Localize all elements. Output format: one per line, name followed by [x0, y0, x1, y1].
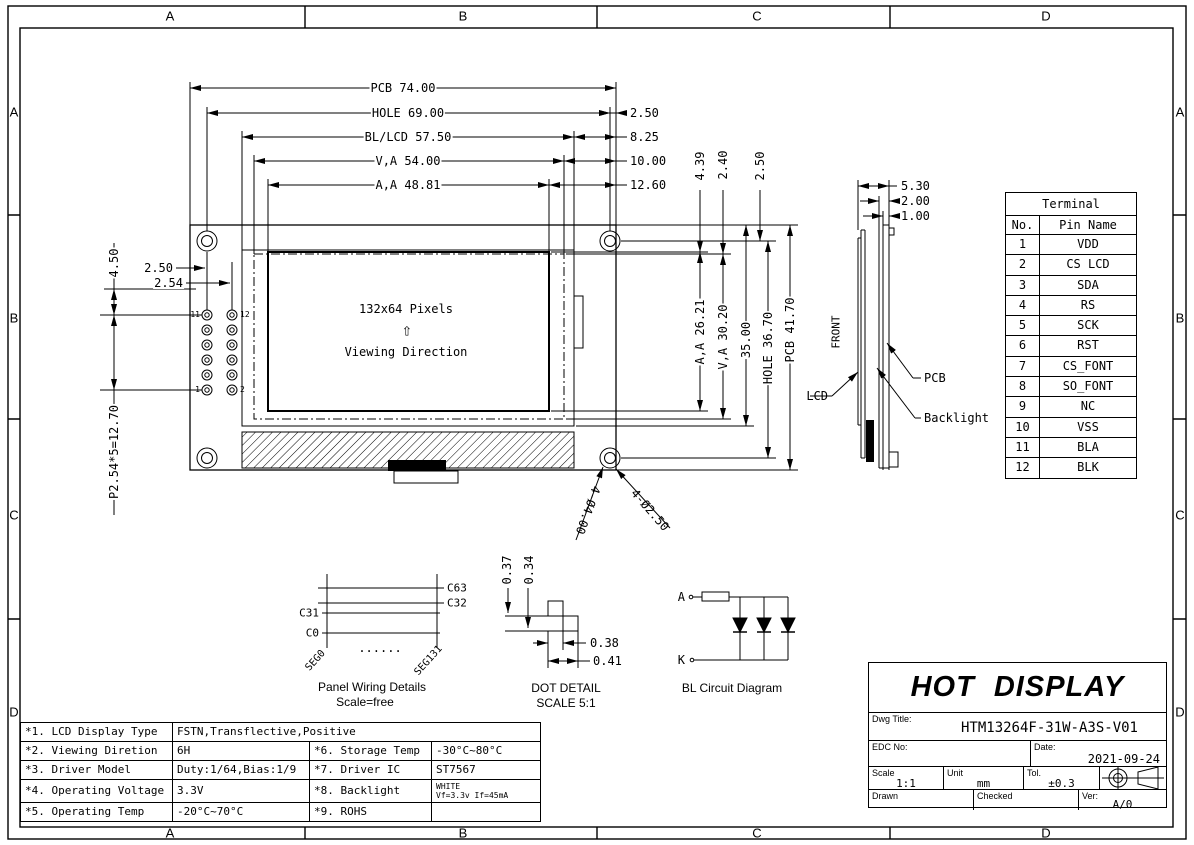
dim-pcb-width: PCB 74.00 — [369, 82, 436, 94]
spec-row: *1. LCD Display Type FSTN,Transflective,… — [21, 723, 540, 741]
terminal-row: 3SDA — [1006, 275, 1136, 295]
terminal-row: 12BLK — [1006, 457, 1136, 477]
spec-row: *5. Operating Temp -20°C~70°C *9. ROHS — [21, 802, 540, 821]
drawing-sheet: A B C D A B C D A B C D A B C D PCB 74.0… — [0, 0, 1194, 845]
pin-no: 9 — [1006, 397, 1040, 416]
spec-row: *3. Driver Model Duty:1/64,Bias:1/9 *7. … — [21, 760, 540, 779]
spec-value: 6H — [172, 742, 309, 760]
bl-circuit-diagram — [689, 592, 795, 662]
dim-pin-row-pitch: P2.54*5=12.70 — [108, 404, 120, 500]
third-angle-projection-icon — [1102, 767, 1164, 789]
spec-value: ST7567 — [431, 761, 540, 779]
terminal-row: 4RS — [1006, 295, 1136, 315]
pin-name: RST — [1040, 336, 1136, 355]
wiring-label-c32: C32 — [446, 598, 468, 609]
spec-value: FSTN,Transflective,Positive — [172, 723, 540, 741]
dim-pin-offset-250: 2.50 — [143, 262, 174, 274]
terminal-row: 7CS_FONT — [1006, 356, 1136, 376]
drawn-cell: Drawn — [869, 790, 973, 810]
wiring-label-c31: C31 — [298, 608, 320, 619]
edc-no-cell: EDC No: — [869, 741, 1030, 766]
spec-table: *1. LCD Display Type FSTN,Transflective,… — [20, 722, 541, 822]
zone-letter-right-b: B — [1176, 312, 1185, 325]
pin-label-11: 11 — [190, 311, 200, 319]
zone-letter-top-a: A — [166, 10, 175, 23]
side-tab — [889, 452, 898, 467]
spec-label: *7. Driver IC — [309, 761, 431, 779]
date-value: 2021-09-24 — [1031, 752, 1166, 766]
spec-label: *8. Backlight — [309, 780, 431, 802]
pin-no: 3 — [1006, 276, 1040, 295]
dim-hole-width: HOLE 69.00 — [371, 107, 445, 119]
tolerance-value: ±0.3 — [1024, 777, 1099, 790]
tolerance-label: Tol. — [1027, 768, 1041, 778]
pin-label-1: 1 — [195, 386, 200, 394]
side-connector — [866, 420, 874, 462]
bl-anode-label: A — [677, 591, 686, 603]
spec-label: *3. Driver Model — [21, 761, 172, 779]
zone-letter-top-b: B — [459, 10, 468, 23]
spec-label: *2. Viewing Diretion — [21, 742, 172, 760]
dot-dim-037: 0.37 — [501, 555, 513, 586]
pin-name: VSS — [1040, 418, 1136, 437]
terminal-row: 9NC — [1006, 396, 1136, 416]
pin-no: 7 — [1006, 357, 1040, 376]
dim-va-height: V,A 30.20 — [717, 303, 729, 370]
zone-letter-left-d: D — [9, 706, 18, 719]
zone-letter-left-b: B — [10, 312, 19, 325]
pin-name: SDA — [1040, 276, 1136, 295]
viewing-direction-arrow-icon: ⇧ — [402, 323, 412, 340]
dim-250-v: 2.50 — [754, 151, 766, 182]
unit-label: Unit — [947, 768, 963, 778]
backlight-layer-label: Backlight — [923, 412, 990, 424]
version-label: Ver: — [1082, 791, 1098, 801]
checked-cell: Checked — [973, 790, 1078, 810]
dim-bllcd-width: BL/LCD 57.50 — [364, 131, 453, 143]
dim-450-vertical: 4.50 — [108, 248, 120, 279]
dim-pin-pitch-254: 2.54 — [153, 277, 184, 289]
pin-name: CS LCD — [1040, 255, 1136, 274]
dot-dim-038: 0.38 — [589, 637, 620, 649]
viewing-direction-label: Viewing Direction — [344, 346, 469, 358]
zone-letter-right-a: A — [1176, 106, 1185, 119]
dim-offset-825: 8.25 — [629, 131, 660, 143]
checked-label: Checked — [977, 791, 1013, 801]
bl-circuit-caption: BL Circuit Diagram — [682, 682, 782, 694]
terminal-row: 8SO_FONT — [1006, 376, 1136, 396]
terminal-row: 6RST — [1006, 335, 1136, 355]
spec-value: WHITE Vf=3.3v If=45mA — [431, 780, 540, 802]
spec-row: *4. Operating Voltage 3.3V *8. Backlight… — [21, 779, 540, 802]
dim-pcb-height: PCB 41.70 — [784, 296, 796, 363]
zone-letter-left-c: C — [9, 509, 18, 522]
spec-label: *5. Operating Temp — [21, 803, 172, 821]
dim-aa-height: A,A 26.21 — [694, 298, 706, 365]
display-resolution-label: 132x64 Pixels — [358, 303, 454, 315]
zone-letter-left-a: A — [10, 106, 19, 119]
terminal-col-no: No. — [1006, 216, 1040, 234]
date-cell: Date: 2021-09-24 — [1030, 741, 1166, 766]
dot-detail-caption: DOT DETAIL — [531, 682, 601, 694]
unit-value: mm — [944, 777, 1023, 790]
lcd-side-tab — [574, 296, 583, 348]
pin-no: 2 — [1006, 255, 1040, 274]
spec-label: *9. ROHS — [309, 803, 431, 821]
side-view — [810, 180, 921, 470]
title-block: HOT DISPLAY Dwg Title: HTM13264F-31W-A3S… — [868, 662, 1167, 808]
spec-label: *4. Operating Voltage — [21, 780, 172, 802]
dwg-title-label: Dwg Title: — [872, 714, 912, 724]
lcd-layer-label: LCD — [805, 390, 829, 402]
pin-no: 4 — [1006, 296, 1040, 315]
unit-cell: Unit mm — [943, 767, 1023, 789]
panel-wiring-diagram — [318, 574, 444, 648]
dwg-title-label-cell: Dwg Title: — [869, 713, 933, 740]
edc-no-label: EDC No: — [872, 742, 908, 752]
dim-hole-height: HOLE 36.70 — [762, 311, 774, 385]
panel-wiring-caption: Panel Wiring Details — [318, 681, 426, 693]
backlight-color: WHITE — [436, 782, 540, 791]
dim-439: 4.39 — [694, 151, 706, 182]
spec-value: -20°C~70°C — [172, 803, 309, 821]
resistor — [702, 592, 729, 601]
dwg-title-value: HTM13264F-31W-A3S-V01 — [933, 713, 1166, 740]
pin-name: CS_FONT — [1040, 357, 1136, 376]
zone-letter-top-c: C — [752, 10, 761, 23]
wiring-ellipsis: ...... — [357, 642, 402, 654]
backlight-connector — [388, 460, 446, 471]
pin-label-12: 12 — [240, 311, 250, 319]
terminal-row: 5SCK — [1006, 315, 1136, 335]
spec-value: 3.3V — [172, 780, 309, 802]
dim-offset-250: 2.50 — [629, 107, 660, 119]
panel-wiring-scale-note: Scale=free — [336, 696, 394, 708]
date-label: Date: — [1034, 742, 1056, 752]
dim-3500: 35.00 — [740, 321, 752, 359]
zone-letter-bottom-c: C — [752, 827, 761, 840]
pin-no: 10 — [1006, 418, 1040, 437]
scale-cell: Scale 1:1 — [869, 767, 943, 789]
pin-no: 5 — [1006, 316, 1040, 335]
zone-letter-bottom-a: A — [166, 827, 175, 840]
drawn-label: Drawn — [872, 791, 898, 801]
spec-value — [431, 803, 540, 821]
front-orientation-label: FRONT — [831, 314, 842, 349]
spec-row: *2. Viewing Diretion 6H *6. Storage Temp… — [21, 741, 540, 760]
spec-value: -30°C~80°C — [431, 742, 540, 760]
terminal-table-header: No. Pin Name — [1006, 215, 1136, 234]
pin-no: 1 — [1006, 235, 1040, 254]
terminal-table: Terminal No. Pin Name 1VDD 2CS LCD 3SDA … — [1005, 192, 1137, 479]
pin-name: NC — [1040, 397, 1136, 416]
company-logo: HOT DISPLAY — [869, 663, 1166, 713]
pin-name: SCK — [1040, 316, 1136, 335]
dim-240: 2.40 — [717, 150, 729, 181]
tolerance-cell: Tol. ±0.3 — [1023, 767, 1099, 789]
pin-name: VDD — [1040, 235, 1136, 254]
wiring-label-c63: C63 — [446, 583, 468, 594]
pin-header — [202, 310, 237, 395]
dot-detail-scale-note: SCALE 5:1 — [536, 697, 595, 709]
pin-name: SO_FONT — [1040, 377, 1136, 396]
scale-value: 1:1 — [869, 777, 943, 790]
zone-letter-bottom-b: B — [459, 827, 468, 840]
connector-tab — [394, 471, 458, 483]
dim-side-200: 2.00 — [900, 195, 931, 207]
zone-letter-right-c: C — [1175, 509, 1184, 522]
pin-label-2: 2 — [240, 386, 245, 394]
terminal-row: 2CS LCD — [1006, 254, 1136, 274]
pin-name: RS — [1040, 296, 1136, 315]
led-symbols — [733, 618, 795, 632]
bl-cathode-label: K — [677, 654, 686, 666]
terminal-row: 1VDD — [1006, 234, 1136, 254]
backlight-rating: Vf=3.3v If=45mA — [436, 791, 540, 800]
dim-side-100: 1.00 — [900, 210, 931, 222]
dim-side-530: 5.30 — [900, 180, 931, 192]
terminal-table-title: Terminal — [1006, 193, 1136, 215]
spec-label: *6. Storage Temp — [309, 742, 431, 760]
projection-symbol-cell — [1099, 767, 1166, 789]
pin-name: BLA — [1040, 438, 1136, 457]
dim-aa-width: A,A 48.81 — [374, 179, 441, 191]
pin-name: BLK — [1040, 458, 1136, 477]
terminal-row: 10VSS — [1006, 417, 1136, 437]
dim-offset-1000: 10.00 — [629, 155, 667, 167]
wiring-label-c0: C0 — [305, 628, 320, 639]
pin-no: 12 — [1006, 458, 1040, 477]
zone-letter-bottom-d: D — [1041, 827, 1050, 840]
dot-detail-diagram — [505, 588, 590, 668]
terminal-row: 11BLA — [1006, 437, 1136, 457]
zone-letter-top-d: D — [1041, 10, 1050, 23]
zone-letter-right-d: D — [1175, 706, 1184, 719]
pin-no: 8 — [1006, 377, 1040, 396]
pin-no: 6 — [1006, 336, 1040, 355]
pcb-layer-label: PCB — [923, 372, 947, 384]
dim-va-width: V,A 54.00 — [374, 155, 441, 167]
spec-value: Duty:1/64,Bias:1/9 — [172, 761, 309, 779]
dim-offset-1260: 12.60 — [629, 179, 667, 191]
pin-no: 11 — [1006, 438, 1040, 457]
version-cell: Ver: A/0 — [1078, 790, 1166, 810]
dot-dim-041: 0.41 — [592, 655, 623, 667]
dot-dim-034: 0.34 — [523, 555, 535, 586]
scale-label: Scale — [872, 768, 895, 778]
spec-label: *1. LCD Display Type — [21, 723, 172, 741]
terminal-col-pin-name: Pin Name — [1040, 216, 1136, 234]
